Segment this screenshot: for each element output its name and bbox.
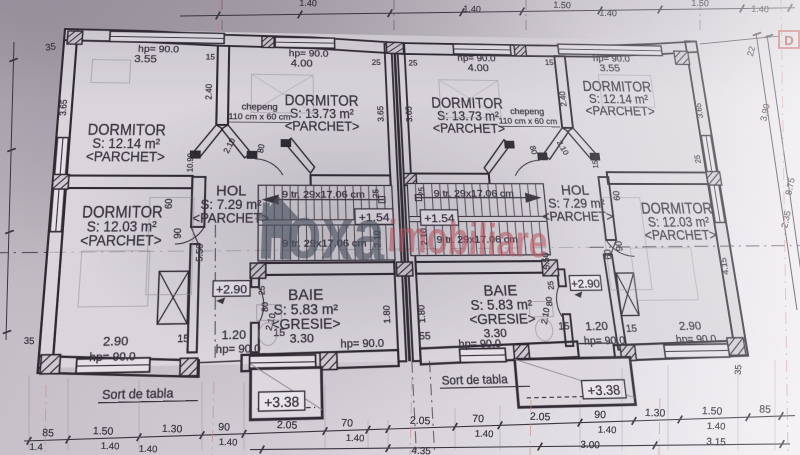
svg-text:imobiliare: imobiliare: [387, 210, 549, 267]
svg-text:oxa: oxa: [285, 190, 386, 276]
